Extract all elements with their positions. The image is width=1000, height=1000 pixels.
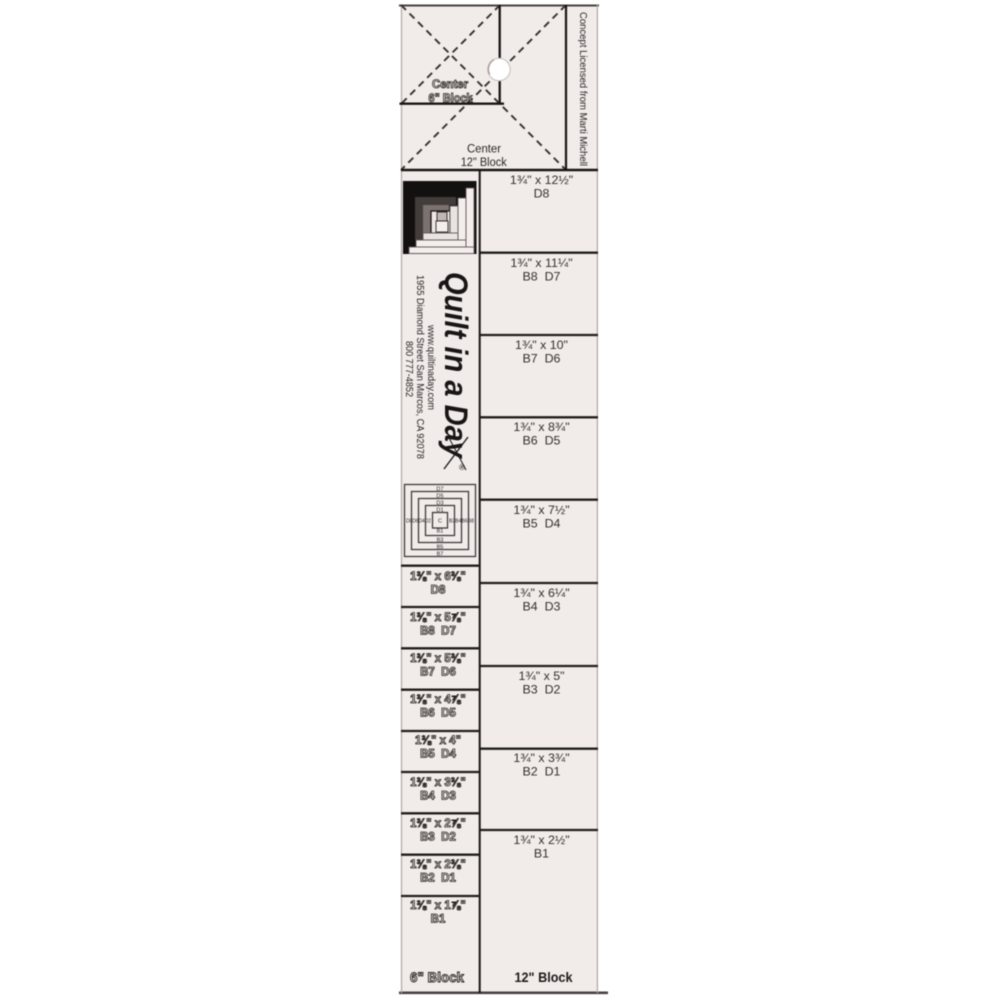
svg-text:B8 D7: B8 D7	[420, 626, 456, 638]
svg-text:D5: D5	[436, 494, 443, 500]
svg-text:B1: B1	[431, 914, 446, 926]
svg-text:B3 D2: B3 D2	[523, 683, 561, 697]
svg-text:1¾" x 2½": 1¾" x 2½"	[513, 833, 569, 847]
svg-text:B2 D1: B2 D1	[420, 873, 456, 885]
svg-text:B2B4B6B8: B2B4B6B8	[449, 519, 474, 525]
svg-text:www.quiltinaday.com: www.quiltinaday.com	[425, 324, 437, 410]
svg-text:B6 D5: B6 D5	[523, 434, 561, 448]
svg-text:1¾" x 12½": 1¾" x 12½"	[510, 173, 573, 187]
svg-text:1¾" x 11¼": 1¾" x 11¼"	[510, 256, 572, 270]
svg-text:B5 D4: B5 D4	[523, 517, 561, 531]
svg-text:D1: D1	[436, 508, 443, 514]
svg-text:12" Block: 12" Block	[461, 155, 508, 169]
svg-text:B4 D3: B4 D3	[420, 791, 456, 803]
svg-text:B7 D6: B7 D6	[420, 667, 456, 679]
svg-text:1¾" x 6¼": 1¾" x 6¼"	[513, 586, 569, 600]
svg-text:1¾" x 3¾": 1¾" x 3¾"	[513, 751, 569, 765]
svg-text:6" Block: 6" Block	[429, 91, 473, 105]
svg-text:Concept Licensed from Marti Mi: Concept Licensed from Marti Michell	[577, 12, 588, 166]
svg-text:1⅜" x 1⅞": 1⅜" x 1⅞"	[410, 900, 466, 912]
svg-text:B3 D2: B3 D2	[420, 832, 456, 844]
svg-text:B5: B5	[437, 545, 444, 551]
svg-text:D8D6D4D2: D8D6D4D2	[406, 519, 431, 525]
svg-text:1¾" x 7½": 1¾" x 7½"	[513, 503, 569, 517]
svg-text:D3: D3	[436, 501, 443, 507]
svg-text:1⅜" x 3⅜": 1⅜" x 3⅜"	[410, 777, 466, 789]
svg-text:1¾" x 5": 1¾" x 5"	[519, 669, 565, 683]
svg-text:B5 D4: B5 D4	[420, 749, 456, 761]
svg-text:Center: Center	[432, 77, 468, 91]
svg-text:1¾" x 10": 1¾" x 10"	[515, 338, 568, 352]
svg-text:B7 D6: B7 D6	[523, 352, 561, 366]
svg-text:12" Block: 12" Block	[515, 970, 573, 986]
svg-text:800 777-4852: 800 777-4852	[403, 341, 415, 397]
svg-text:6" Block: 6" Block	[410, 970, 464, 985]
svg-text:D8: D8	[431, 585, 446, 597]
svg-text:1⅜" x 4": 1⅜" x 4"	[415, 735, 461, 747]
svg-text:1¾" x 8¾": 1¾" x 8¾"	[513, 420, 569, 434]
svg-text:1⅜" x 5⅜": 1⅜" x 5⅜"	[410, 653, 466, 665]
svg-text:1⅜" x 2⅞": 1⅜" x 2⅞"	[410, 818, 466, 830]
svg-text:1⅜" x 4⅞": 1⅜" x 4⅞"	[410, 694, 466, 706]
svg-text:B1: B1	[534, 847, 549, 861]
svg-text:Quilt in a Day: Quilt in a Day	[438, 272, 474, 460]
svg-text:B2 D1: B2 D1	[523, 765, 561, 779]
svg-text:1⅜" x 2⅜": 1⅜" x 2⅜"	[410, 859, 466, 871]
svg-text:B1: B1	[437, 529, 444, 535]
svg-text:B8 D7: B8 D7	[523, 270, 561, 284]
svg-text:B4 D3: B4 D3	[523, 600, 561, 614]
svg-text:1⅜" x 6⅜": 1⅜" x 6⅜"	[410, 571, 466, 583]
svg-text:D7: D7	[436, 487, 443, 493]
svg-text:®: ®	[459, 463, 465, 472]
svg-text:B7: B7	[437, 552, 444, 558]
svg-text:B6 D5: B6 D5	[420, 708, 456, 720]
svg-text:D8: D8	[534, 187, 550, 201]
svg-text:1⅜" x 5⅞": 1⅜" x 5⅞"	[410, 612, 466, 624]
svg-text:Center: Center	[467, 142, 501, 156]
svg-text:B3: B3	[437, 538, 444, 544]
svg-text:C: C	[438, 519, 442, 525]
